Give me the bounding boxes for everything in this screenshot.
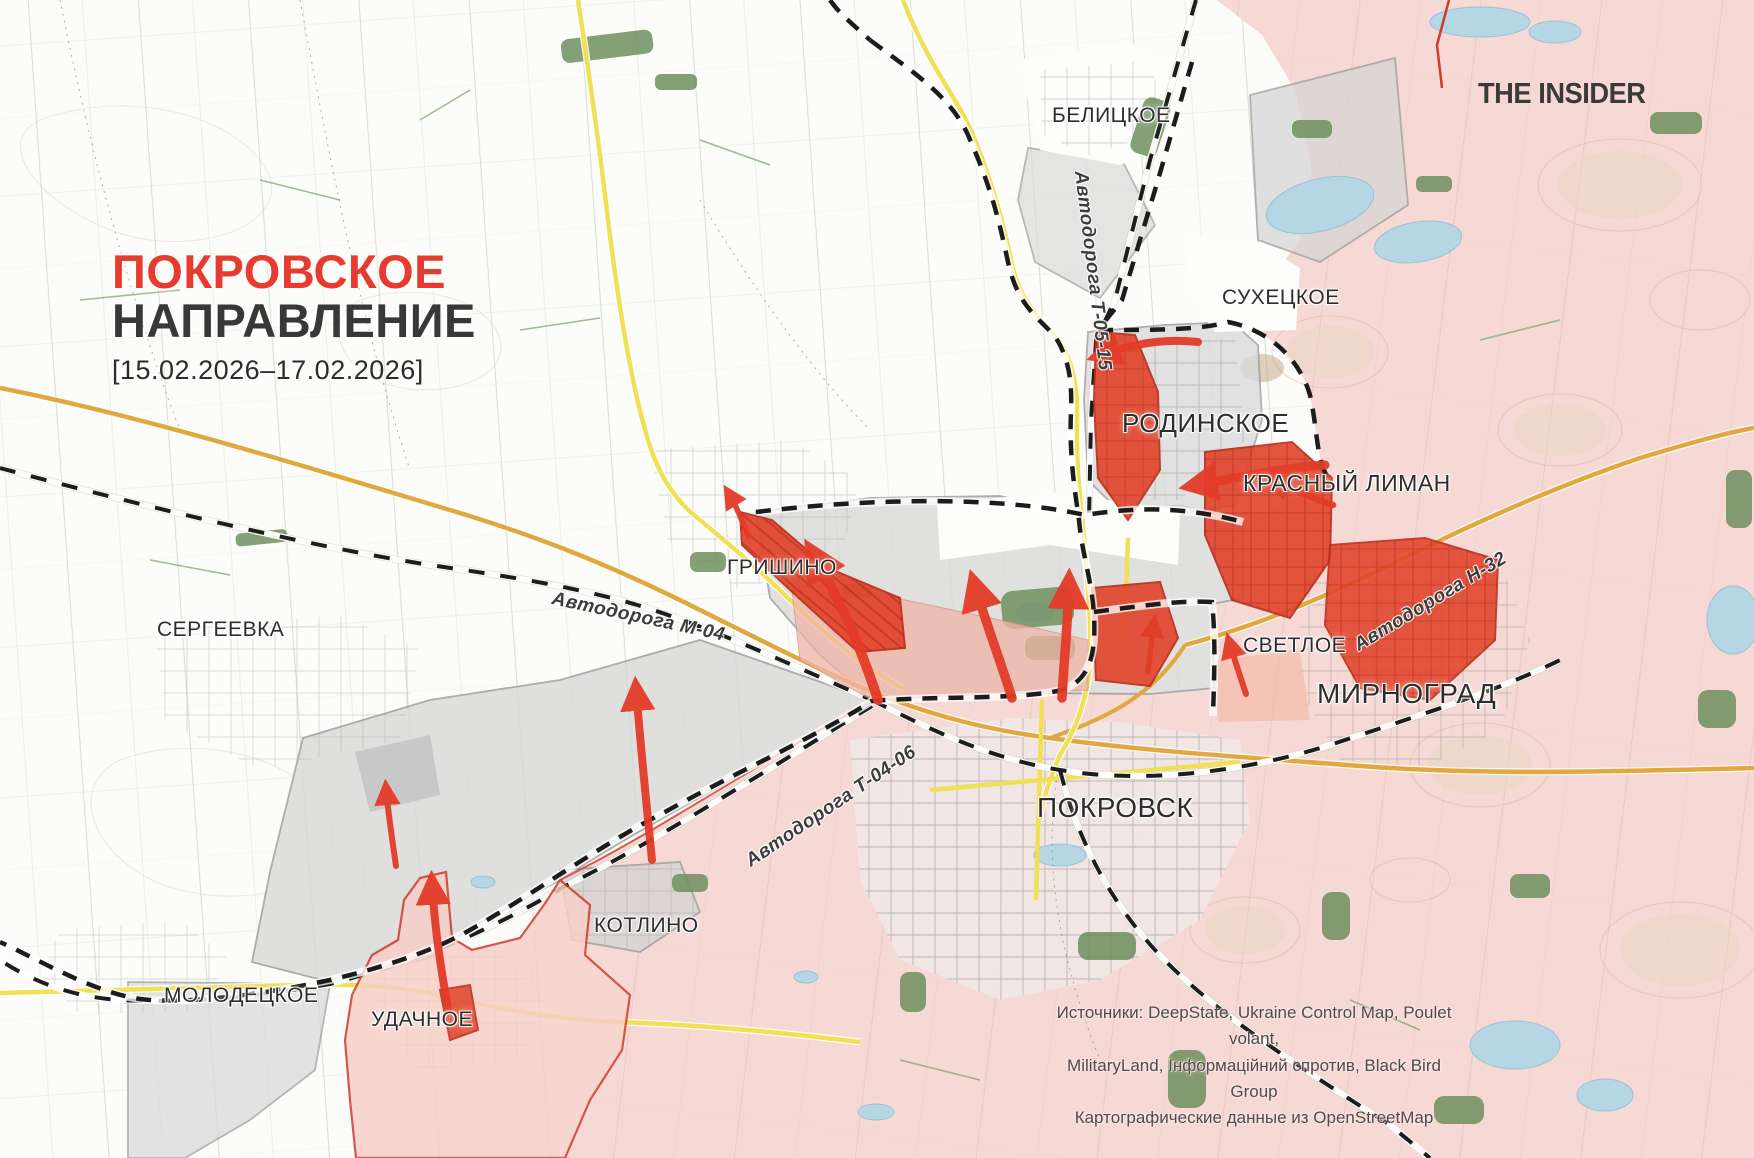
sources-line-3: Картографические данные из OpenStreetMap: [1046, 1105, 1462, 1131]
place-label-udachnoe: УДАЧНОЕ: [371, 1008, 473, 1032]
title-date-range: [15.02.2026–17.02.2026]: [112, 356, 476, 384]
place-label-svetloe: СВЕТЛОЕ: [1243, 634, 1346, 658]
sources-line-2: MilitaryLand, Інформаційний спротив, Bla…: [1046, 1053, 1462, 1106]
place-label-sukhetskoe: СУХЕЦКОЕ: [1222, 286, 1340, 310]
place-label-kotlino: КОТЛИНО: [594, 914, 699, 938]
place-label-sergeevka: СЕРГЕЕВКА: [157, 618, 284, 642]
place-label-mirnograd: МИРНОГРАД: [1317, 678, 1496, 710]
sources-attribution: Источники: DeepState, Ukraine Control Ma…: [1046, 1000, 1462, 1132]
title-direction-name: ПОКРОВСКОЕ: [112, 248, 476, 297]
place-label-molodetskoe: МОЛОДЕЦКОЕ: [164, 984, 318, 1008]
place-label-belitskoe: БЕЛИЦКОЕ: [1052, 104, 1171, 128]
map-screenshot: ПОКРОВСКОЕ НАПРАВЛЕНИЕ [15.02.2026–17.02…: [0, 0, 1754, 1158]
title-direction-word: НАПРАВЛЕНИЕ: [112, 297, 476, 346]
place-label-krasny-liman: КРАСНЫЙ ЛИМАН: [1243, 470, 1451, 497]
place-label-grishino: ГРИШИНО: [727, 556, 837, 580]
title-block: ПОКРОВСКОЕ НАПРАВЛЕНИЕ [15.02.2026–17.02…: [112, 248, 476, 384]
sources-line-1: Источники: DeepState, Ukraine Control Ma…: [1046, 1000, 1462, 1053]
place-label-rodinskoe: РОДИНСКОЕ: [1122, 408, 1289, 439]
the-insider-logo: THE INSIDER: [1478, 78, 1645, 111]
place-label-pokrovsk: ПОКРОВСК: [1037, 792, 1193, 824]
